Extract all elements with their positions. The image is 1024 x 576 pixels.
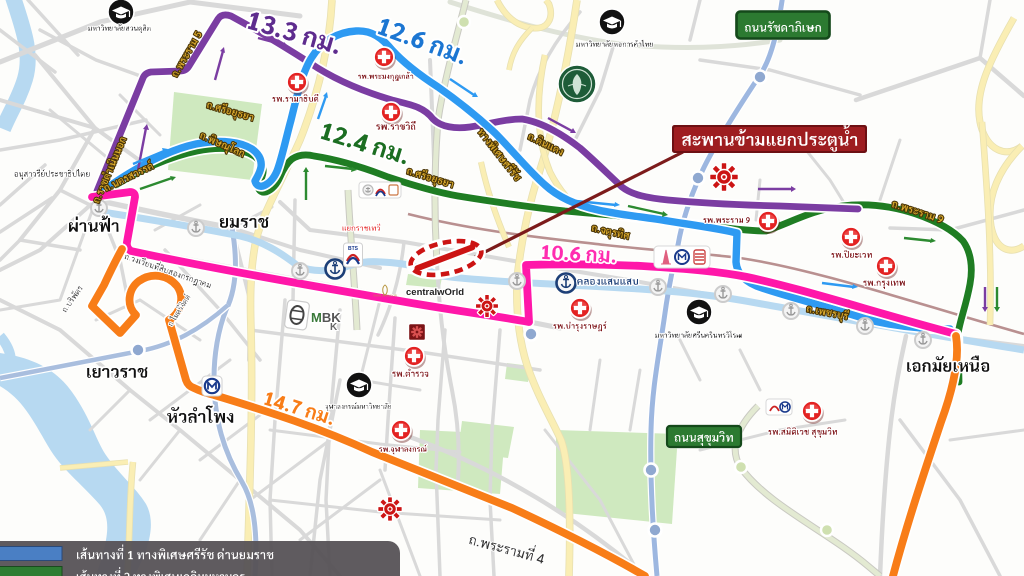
svg-text:centralwOrld: centralwOrld	[406, 287, 464, 298]
svg-text:K: K	[330, 322, 338, 333]
svg-text:SIAM PARAGON: SIAM PARAGON	[373, 294, 398, 298]
svg-text:BTS: BTS	[348, 246, 359, 252]
